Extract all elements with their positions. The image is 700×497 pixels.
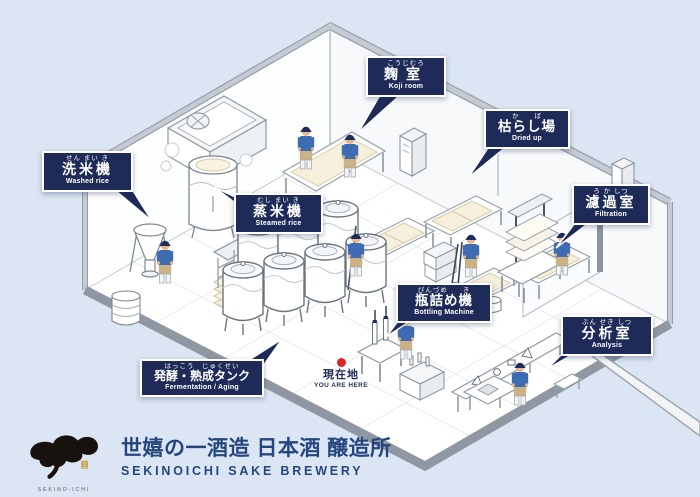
label-english: Fermentation / Aging <box>145 384 259 393</box>
brewery-map: せん まい き 洗米機 Washed rice むし まい き 蒸米機 Stea… <box>0 0 700 497</box>
label-english: Filtration <box>577 211 645 220</box>
brewery-isometric-scene <box>0 0 700 497</box>
brewery-titles: 世嬉の一酒造 日本酒 醸造所 SEKINOICHI SAKE BREWERY <box>121 436 392 479</box>
label-analysis: ぶん せき しつ 分析室 Analysis <box>561 315 653 356</box>
you-are-here-japanese: 現在地 <box>300 369 382 381</box>
label-koji-room: こうじむろ 麹室 Koji room <box>366 56 446 97</box>
cabinet <box>400 128 426 176</box>
label-japanese: 濾過室 <box>577 195 645 210</box>
label-english: Bottling Machine <box>401 309 487 318</box>
you-are-here-english: YOU ARE HERE <box>300 381 382 390</box>
label-english: Analysis <box>566 342 648 351</box>
label-bottling-machine: びんづめ き 瓶詰め機 Bottling Machine <box>396 283 492 323</box>
logo-caption: SEKINO-ICHI <box>20 487 108 493</box>
label-japanese: 枯らし場 <box>489 120 565 135</box>
brewery-title-japanese: 世嬉の一酒造 日本酒 醸造所 <box>121 436 392 461</box>
label-japanese: 分析室 <box>566 326 648 341</box>
label-fermentation-aging: はっこう じゅくせい 発酵・熟成タンク Fermentation / Aging <box>140 359 264 397</box>
label-filtration: ろ か しつ 濾過室 Filtration <box>572 184 650 225</box>
brewery-title-english: SEKINOICHI SAKE BREWERY <box>121 463 392 479</box>
label-washed-rice: せん まい き 洗米機 Washed rice <box>42 151 133 192</box>
label-english: Washed rice <box>47 178 128 187</box>
label-japanese: 麹室 <box>371 67 441 82</box>
label-steamed-rice: むし まい き 蒸米機 Steamed rice <box>234 193 323 234</box>
label-english: Steamed rice <box>239 220 318 229</box>
label-english: Dried up <box>489 135 565 144</box>
brewery-logo: SEKINO-ICHI <box>20 429 108 493</box>
label-japanese: 発酵・熟成タンク <box>145 370 259 383</box>
label-japanese: 瓶詰め機 <box>401 294 487 309</box>
label-japanese: 蒸米機 <box>239 204 318 219</box>
label-japanese: 洗米機 <box>47 162 128 177</box>
you-are-here-marker: 現在地 YOU ARE HERE <box>300 358 382 390</box>
barrel-stack <box>112 291 140 325</box>
label-dried-up: か ば 枯らし場 Dried up <box>484 109 570 149</box>
logo-mark <box>20 429 108 481</box>
you-are-here-dot <box>337 358 346 367</box>
label-english: Koji room <box>371 83 441 92</box>
